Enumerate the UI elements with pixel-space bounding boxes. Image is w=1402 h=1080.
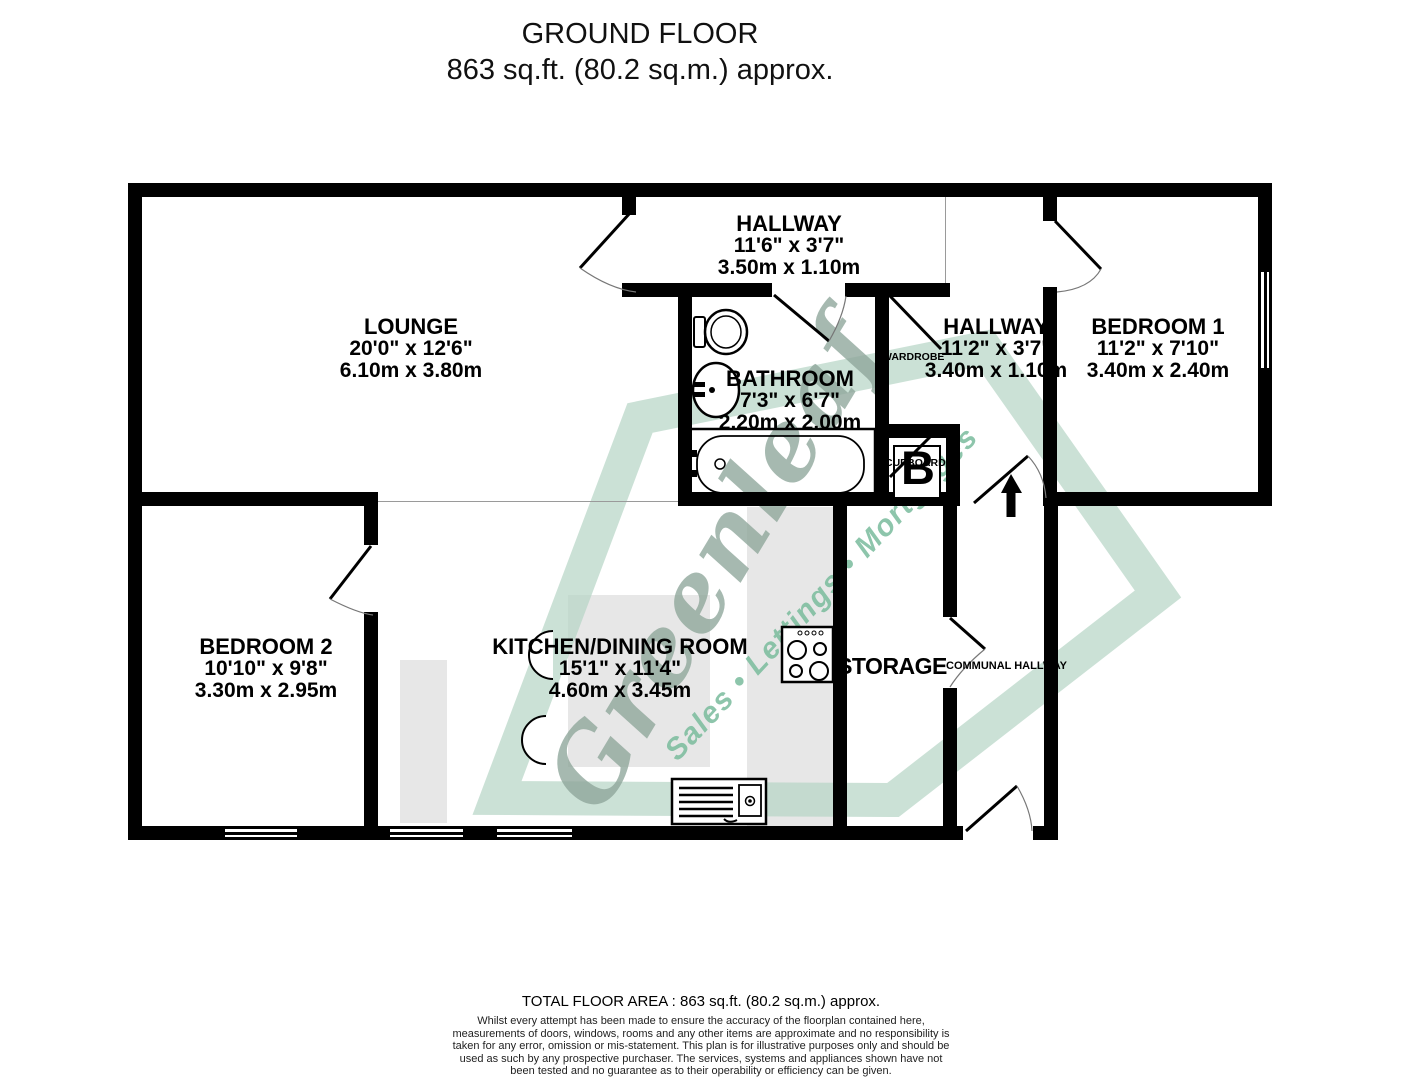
wall <box>943 688 957 840</box>
window <box>390 826 463 840</box>
wall <box>128 183 1272 197</box>
wall <box>678 290 692 506</box>
window <box>497 826 572 840</box>
room-label-bedroom1: BEDROOM 1 11'2" x 7'10" 3.40m x 2.40m <box>1087 316 1229 382</box>
room-label-inner-hallway: HALLWAY 11'2" x 3'7" 3.40m x 1.10m <box>925 316 1067 382</box>
kitchen-counter-right <box>747 507 833 826</box>
wall <box>572 826 963 840</box>
bathroom-door <box>774 295 829 341</box>
watermark-leaf-logo <box>0 0 1402 1080</box>
toilet-icon <box>694 310 747 354</box>
wall <box>1047 492 1272 506</box>
wall <box>128 826 225 840</box>
bedroom2-door <box>330 546 371 599</box>
window <box>225 826 297 840</box>
wall <box>1258 183 1272 272</box>
room-label-lounge: LOUNGE 20'0" x 12'6" 6.10m x 3.80m <box>340 316 482 382</box>
wall <box>364 492 378 545</box>
room-label-bathroom: BATHROOM 7'3" x 6'7" 2.20m x 2.00m <box>719 368 861 434</box>
room-label-storage: STORAGE <box>837 655 947 678</box>
wall <box>1258 368 1272 506</box>
lounge-hallway-door <box>580 213 630 268</box>
bathtub-icon <box>689 429 875 500</box>
entrance-door <box>974 456 1028 503</box>
fixtures-and-doors-layer <box>0 0 1402 1080</box>
wall <box>943 506 957 617</box>
wall <box>1043 183 1057 221</box>
title-line1: GROUND FLOOR <box>0 16 1280 52</box>
wall <box>622 283 772 297</box>
wall <box>946 424 960 506</box>
boiler-symbol: B <box>901 444 935 491</box>
room-label-bedroom2: BEDROOM 2 10'10" x 9'8" 3.30m x 2.95m <box>195 636 337 702</box>
communal-entrance-door <box>966 786 1017 831</box>
room-label-hallway: HALLWAY 11'6" x 3'7" 3.50m x 1.10m <box>718 213 860 279</box>
title-line2: 863 sq.ft. (80.2 sq.m.) approx. <box>0 52 1280 88</box>
wall <box>128 183 142 840</box>
bedroom1-door <box>1055 221 1101 269</box>
page-title: GROUND FLOOR 863 sq.ft. (80.2 sq.m.) app… <box>0 16 1280 88</box>
footer: TOTAL FLOOR AREA : 863 sq.ft. (80.2 sq.m… <box>0 993 1402 1080</box>
room-label-communal-hallway: COMMUNAL HALLWAY <box>946 660 1067 672</box>
room-label-kitchen: KITCHEN/DINING ROOM 15'1" x 11'4" 4.60m … <box>492 636 747 702</box>
window <box>1258 272 1272 368</box>
wall <box>128 492 378 506</box>
lounge-kitchen-divider-line <box>378 501 678 502</box>
disclaimer-text: Whilst every attempt has been made to en… <box>449 1015 954 1078</box>
wall <box>364 612 378 840</box>
wall <box>1044 506 1058 840</box>
wardrobe-label: WARDROBE <box>882 351 944 363</box>
wall <box>463 826 497 840</box>
wall <box>622 183 636 215</box>
entrance-arrow-icon <box>1001 474 1022 517</box>
storage-door <box>950 618 985 649</box>
total-floor-area: TOTAL FLOOR AREA : 863 sq.ft. (80.2 sq.m… <box>0 993 1402 1010</box>
wall <box>845 283 950 297</box>
floor-plan-page: GROUND FLOOR 863 sq.ft. (80.2 sq.m.) app… <box>0 0 1402 1080</box>
kitchen-counter-left <box>400 660 447 823</box>
hallway-divider-line <box>945 197 946 283</box>
